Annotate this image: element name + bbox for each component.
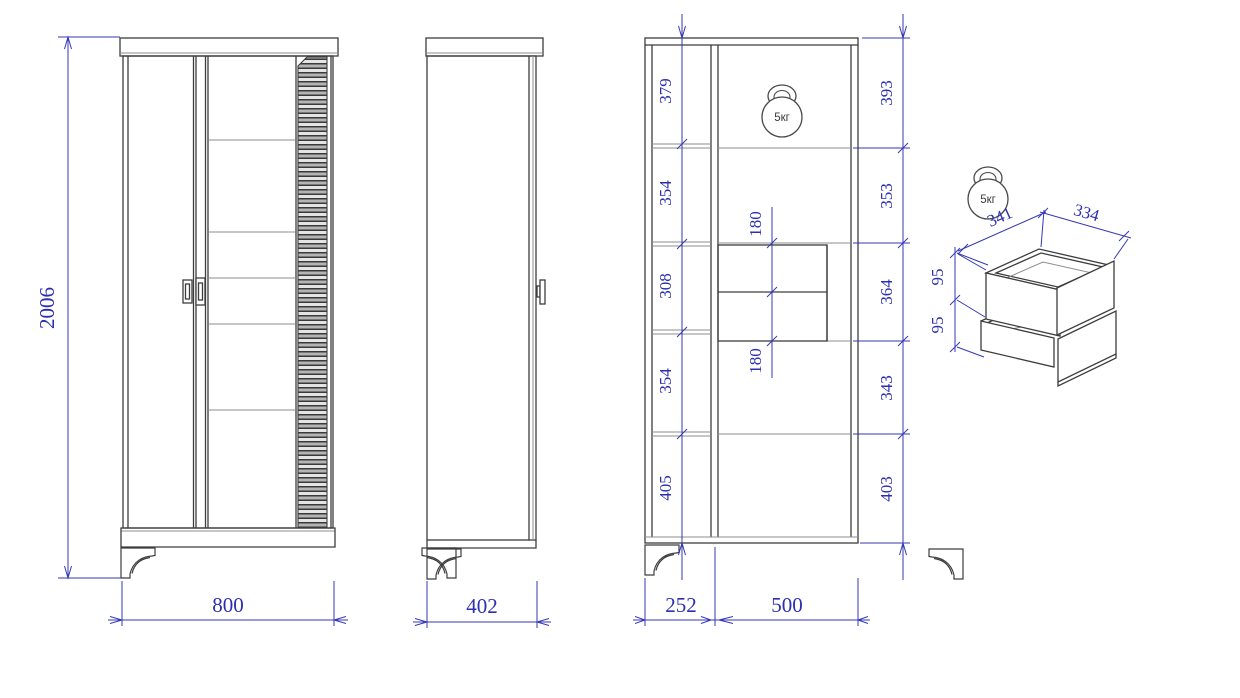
interior-left-dim-4: 354 (656, 368, 675, 394)
interior-left-dim-2: 354 (656, 180, 675, 206)
interior-right-dim-4: 343 (877, 375, 896, 401)
interior-left-dim-5: 405 (656, 475, 675, 501)
side-body (427, 56, 536, 540)
drawer-front-height-2: 95 (928, 317, 947, 334)
front-view: 2006 800 (35, 37, 456, 626)
drawer-height-dim-2: 180 (746, 348, 765, 374)
side-right-leg (929, 549, 963, 579)
wardrobe-drawing: 2006 800 (0, 0, 1240, 698)
drawer-unit-isometric-view: 5кг 341 334 (928, 167, 1131, 386)
front-base (121, 528, 335, 547)
interior-right-dim-1: 393 (877, 80, 896, 106)
front-width-label: 800 (212, 593, 244, 617)
technical-drawing-canvas: 2006 800 (0, 0, 1240, 698)
interior-max-load-label: 5кг (774, 112, 790, 124)
front-left-leg (121, 548, 155, 578)
dimension-interior-left-chain (677, 14, 687, 580)
interior-right-dim-2: 353 (877, 183, 896, 209)
interior-right-shelves (718, 148, 851, 434)
drawer-height-dim-1: 180 (746, 211, 765, 237)
drawer-width-label: 334 (1072, 200, 1102, 225)
left-door-handle (183, 280, 192, 303)
drawer-front-height-1: 95 (928, 269, 947, 286)
interior-left-leg (645, 545, 679, 575)
interior-carcass (645, 38, 858, 543)
interior-left-dim-1: 379 (656, 78, 675, 104)
interior-right-dim-3: 364 (877, 279, 896, 305)
interior-width-dim-1: 252 (665, 593, 697, 617)
interior-right-dim-5: 403 (877, 476, 896, 502)
interior-left-dim-3: 308 (656, 273, 675, 299)
side-handle (537, 280, 545, 304)
side-view: 402 (413, 38, 963, 628)
drawer-unit-max-load-label: 5кг (980, 194, 996, 206)
front-slatted-door-strip (298, 57, 327, 528)
side-base (427, 540, 536, 548)
front-glass-shelf-lines (209, 140, 295, 410)
interior-width-dim-2: 500 (771, 593, 803, 617)
dimension-front-height (58, 37, 121, 578)
front-height-label: 2006 (35, 287, 59, 329)
kettlebell-icon (762, 85, 802, 137)
side-depth-label: 402 (466, 594, 498, 618)
right-door-handle (196, 278, 205, 305)
